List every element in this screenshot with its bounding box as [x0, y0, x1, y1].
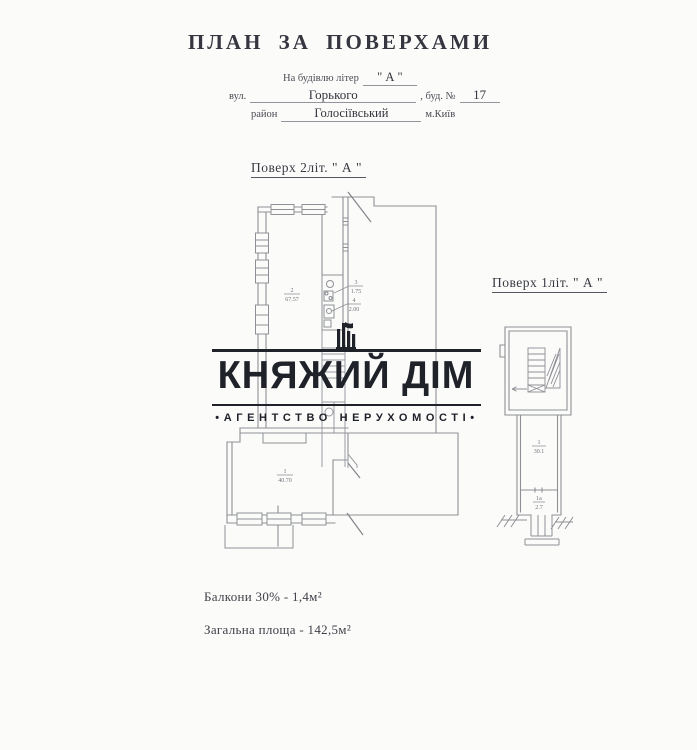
building-letter-label: На будівлю літер [283, 73, 359, 84]
room2-area: 67.57 [285, 297, 299, 303]
watermark-bottom-rule [212, 404, 481, 406]
watermark-brand: КНЯЖИЙ ДІМ [210, 355, 482, 399]
floor1-label: Поверх 1літ. " А " [492, 275, 607, 293]
street-value: Горького [250, 87, 416, 103]
room4-area: 2.00 [349, 307, 360, 313]
floor2-top-windows [271, 205, 325, 215]
floor2-left-windows [256, 233, 269, 334]
street-row: вул. Горького , буд. № 17 [229, 86, 500, 104]
entry-number: 1а [536, 496, 542, 502]
city-label: м.Київ [425, 109, 455, 120]
scanned-floorplan-page: ПЛАН ЗА ПОВЕРХАМИ На будівлю літер " А "… [0, 0, 697, 750]
floor2-balcony [225, 525, 293, 548]
building-number-label: , буд. № [420, 91, 455, 102]
building-letter-row: На будівлю літер " А " [283, 68, 417, 86]
district-value: Голосіївський [281, 106, 421, 122]
floor1-room-labels: 1 30.1 1а 2.7 [532, 440, 546, 511]
building-letter-value: " А " [363, 70, 417, 86]
room3-area: 1.75 [351, 289, 362, 295]
room2-number: 2 [291, 288, 294, 294]
room3-number: 3 [355, 280, 358, 286]
district-label: район [251, 109, 277, 120]
room1-number: 1 [284, 469, 287, 475]
floor1-staircase [512, 348, 560, 392]
floor2-bottom-windows [237, 513, 326, 525]
balcony-note: Балкони 30% - 1,4м² [204, 589, 322, 605]
hall-number: 1 [538, 440, 541, 446]
building-number-value: 17 [460, 87, 500, 103]
page-title: ПЛАН ЗА ПОВЕРХАМИ [150, 30, 530, 55]
room1-area: 40.70 [278, 478, 292, 484]
entry-area: 2.7 [535, 505, 543, 511]
watermark-tagline: •АГЕНТСТВО НЕРУХОМОСТІ• [199, 412, 495, 424]
district-row: район Голосіївський м.Київ [251, 104, 455, 122]
street-label: вул. [229, 91, 246, 102]
total-area-note: Загальна площа - 142,5м² [204, 622, 351, 638]
floor1-plan-drawing: 1 30.1 1а 2.7 [483, 318, 603, 553]
floor2-label: Поверх 2літ. " А " [251, 160, 366, 178]
castle-logo-icon [336, 320, 358, 351]
room4-number: 4 [353, 298, 356, 304]
floor2-wardrobe [263, 433, 306, 443]
hall-area: 30.1 [534, 449, 545, 455]
watermark-top-rule [212, 349, 481, 352]
floor1-entry-steps [497, 515, 573, 545]
